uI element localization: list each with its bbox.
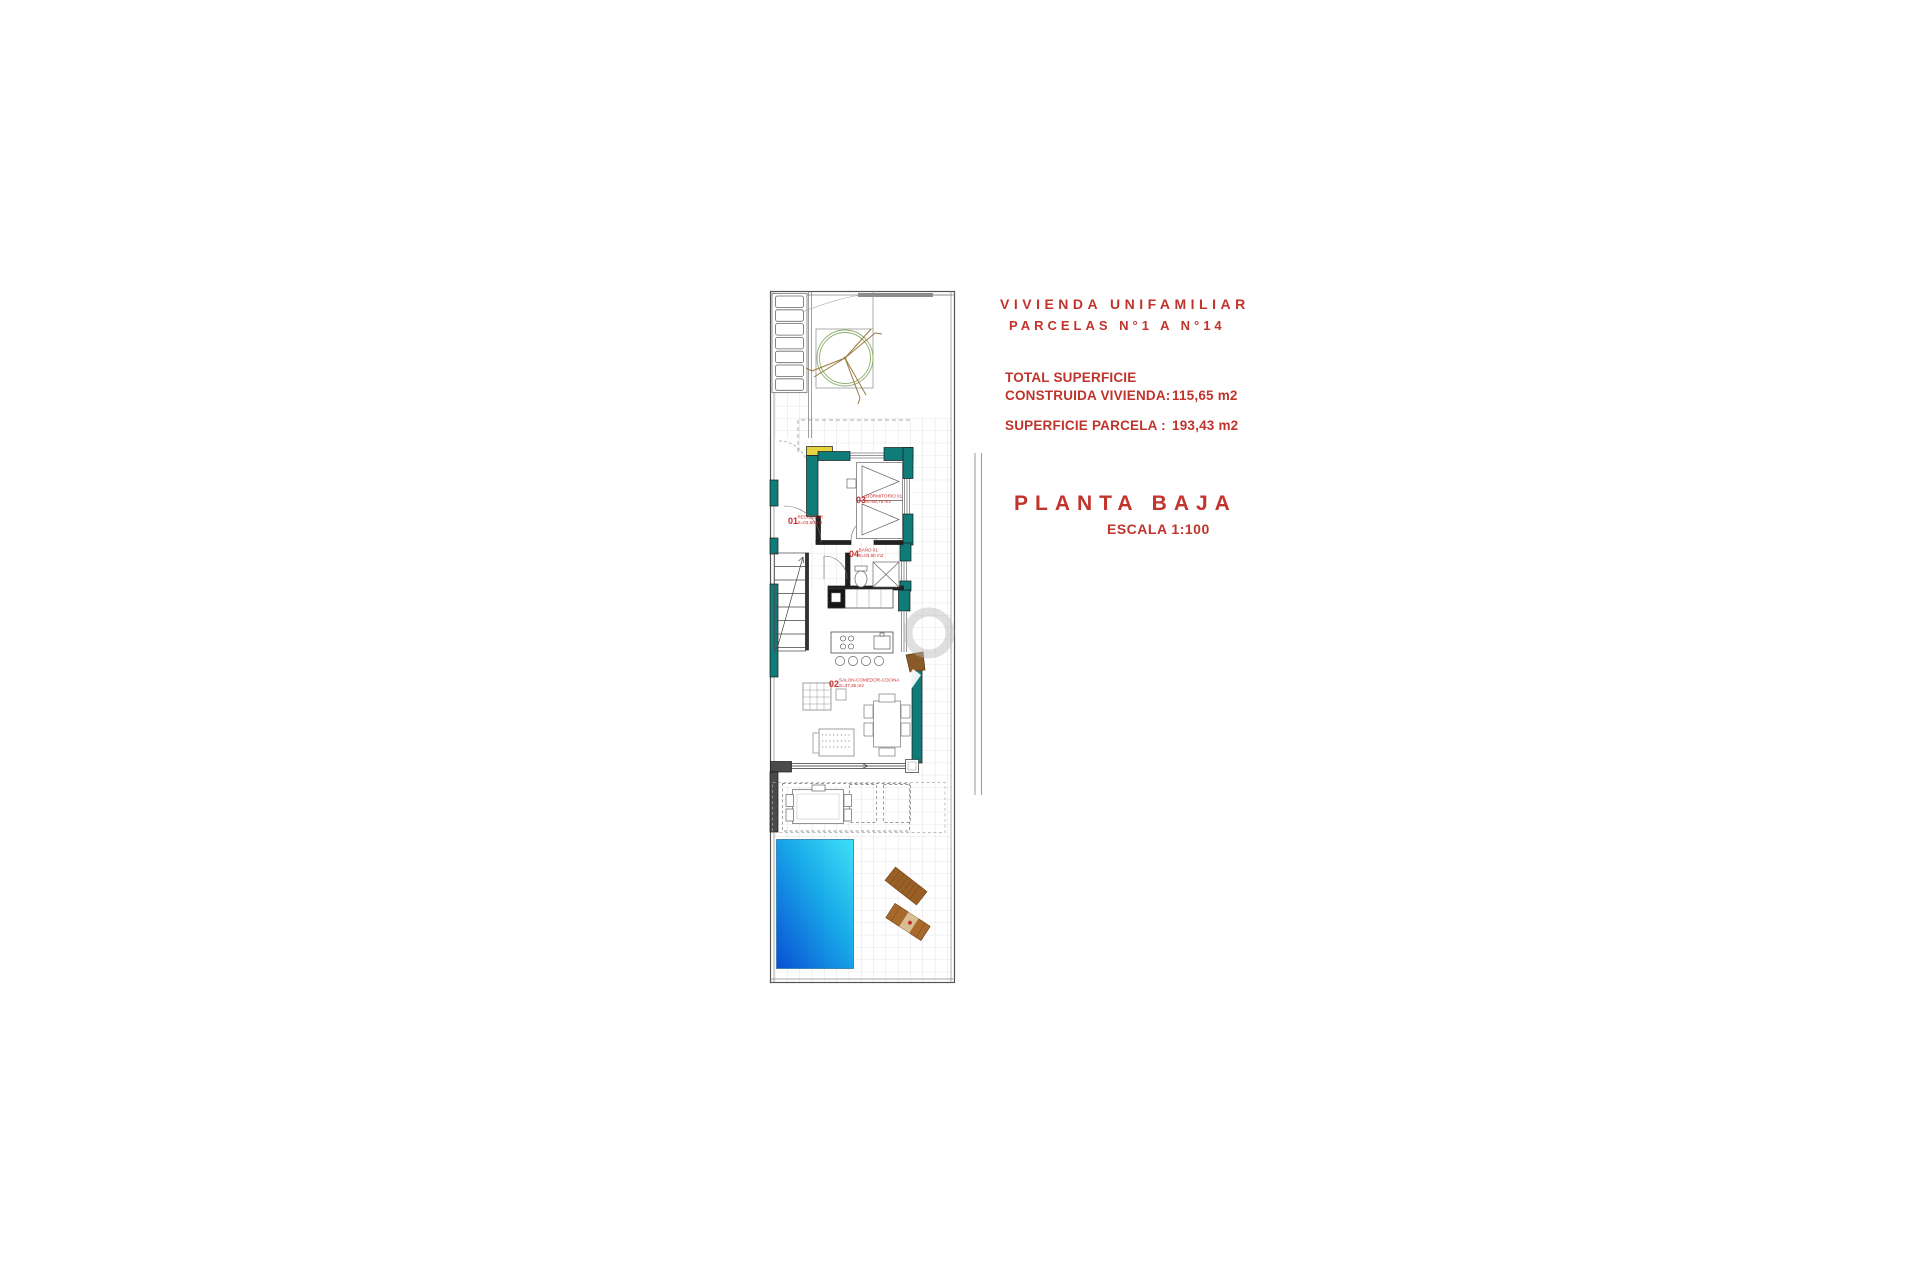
- room-name: DORMITORIO 01: [866, 494, 903, 499]
- chair: [879, 748, 895, 756]
- chair: [864, 723, 873, 736]
- total-surface-value: 115,65 m2: [1172, 388, 1238, 403]
- room-number: 01: [788, 516, 798, 526]
- living-furniture: [803, 683, 910, 756]
- parcel-surface-label: SUPERFICIE PARCELA :: [1005, 418, 1166, 433]
- bathroom-fixtures: [855, 562, 899, 587]
- total-surface-label-line1: TOTAL SUPERFICIE: [1005, 370, 1136, 385]
- bar-stools: [835, 656, 883, 665]
- room-area: S=03,50 m2: [798, 520, 823, 525]
- room-number: 02: [829, 679, 839, 689]
- floor-plan: 01 RECIBIDOR S=03,50 m2 02 SALON-COMEDOR…: [760, 280, 995, 995]
- room-name: BAÑO 01: [859, 547, 879, 553]
- garden-tree: [806, 292, 882, 405]
- tree-branches: [806, 329, 882, 404]
- parcel-surface-value: 193,43 m2: [1172, 418, 1238, 433]
- dining-table: [874, 701, 901, 747]
- toilet-tank: [855, 566, 867, 571]
- sliding-door: [791, 760, 919, 773]
- toilet: [855, 571, 867, 587]
- room-area: S=03,60 m2: [859, 553, 884, 558]
- room-area: S=08,75 m2: [866, 499, 891, 504]
- total-surface-label-line2: CONSTRUIDA VIVIENDA:: [1005, 388, 1171, 403]
- chair: [844, 795, 852, 807]
- room-label-recibidor: 01 RECIBIDOR S=03,50 m2: [788, 515, 824, 527]
- chair: [786, 809, 794, 821]
- chair: [901, 723, 910, 736]
- door-post: [906, 760, 919, 773]
- chair: [844, 809, 852, 821]
- project-subtitle: PARCELAS N°1 A N°14: [1009, 318, 1226, 333]
- chair: [901, 705, 910, 718]
- top-fence: [858, 293, 952, 297]
- outdoor-dining: [786, 785, 852, 824]
- bed: [857, 501, 903, 539]
- kitchen: [828, 589, 893, 666]
- sofa: [819, 729, 854, 756]
- room-label-salon: 02 SALON-COMEDOR-COCINA S=37,35 m2: [829, 678, 900, 690]
- sink: [874, 636, 890, 649]
- chair: [812, 785, 825, 791]
- stairs: [775, 553, 806, 651]
- side-table: [836, 689, 846, 700]
- nightstand: [847, 479, 856, 488]
- chair: [879, 694, 895, 702]
- room-area: S=37,35 m2: [839, 683, 864, 688]
- drawing-sheet: 01 RECIBIDOR S=03,50 m2 02 SALON-COMEDOR…: [0, 0, 1920, 1280]
- swimming-pool: [777, 840, 854, 969]
- chair: [864, 705, 873, 718]
- chair: [786, 795, 794, 807]
- room-name: SALON-COMEDOR-COCINA: [839, 678, 900, 683]
- room-number: 03: [856, 495, 866, 505]
- room-name: RECIBIDOR: [798, 515, 824, 520]
- project-title: VIVIENDA UNIFAMILIAR: [1000, 296, 1250, 312]
- room-number: 04: [849, 549, 859, 559]
- neighbor-boundary-line: [975, 453, 982, 795]
- plan-title: PLANTA BAJA: [1014, 492, 1237, 516]
- plan-scale: ESCALA 1:100: [1107, 521, 1210, 537]
